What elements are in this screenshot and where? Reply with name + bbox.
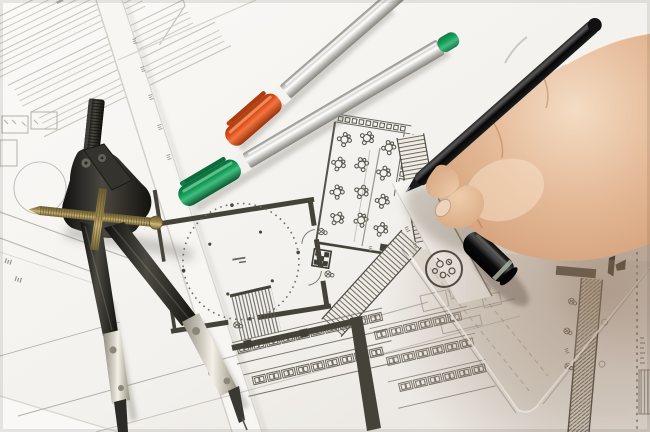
photo-drafting-scene xyxy=(0,0,650,432)
scene-canvas xyxy=(0,0,650,432)
